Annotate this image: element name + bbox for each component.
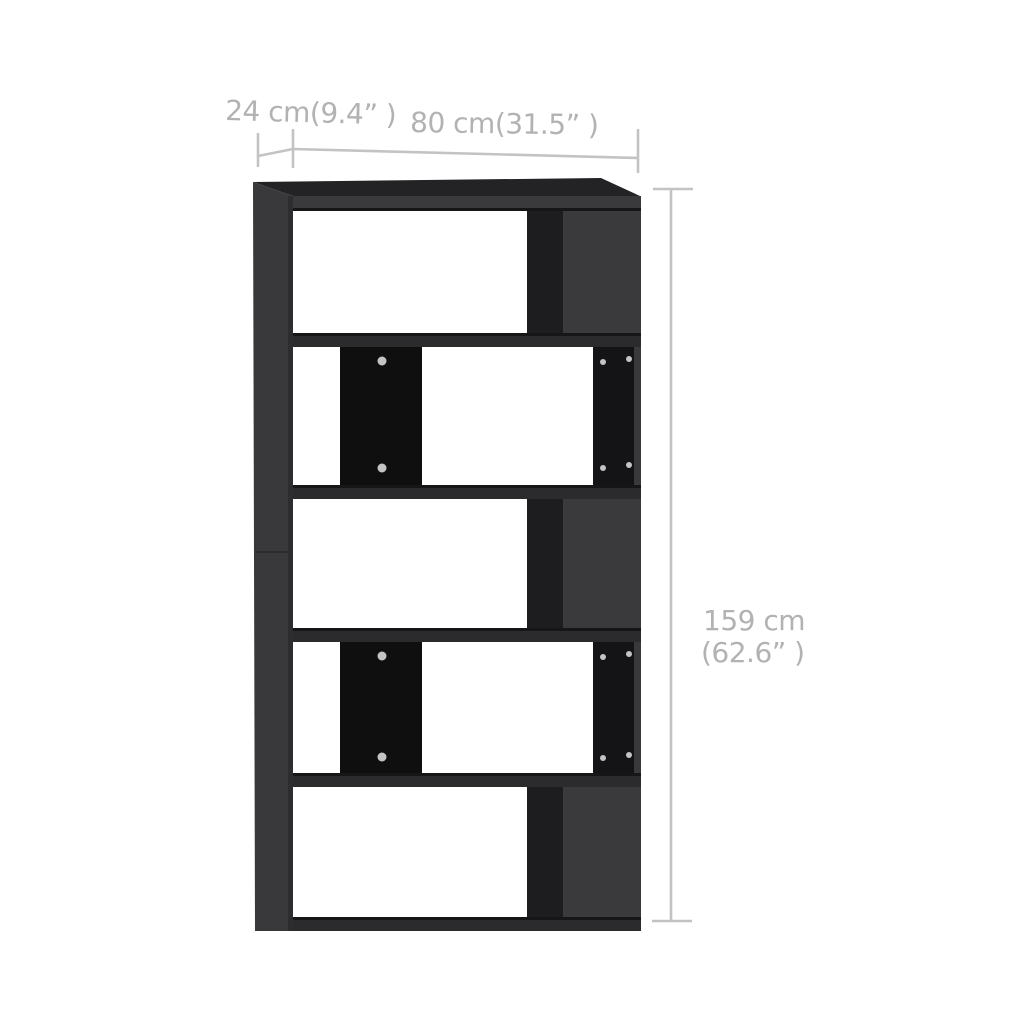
screw-dot: [626, 752, 632, 758]
left-panel-seam: [255, 551, 293, 553]
shelf-band-1: [293, 333, 641, 347]
block-front: [563, 211, 641, 333]
top-panel: [293, 196, 641, 211]
bottom-panel-face: [293, 920, 641, 931]
shelf-face: [293, 336, 641, 347]
shelf-top-edge: [293, 485, 641, 488]
block-front: [563, 787, 641, 917]
width-dimension-label: 80 cm(31.5” ): [410, 106, 599, 142]
depth-dimension-label: 24 cm(9.4” ): [225, 94, 397, 131]
left-side-panel: [253, 182, 293, 931]
shelf-face: [293, 776, 641, 787]
screw-dot: [626, 651, 632, 657]
dimension-diagram-canvas: 24 cm(9.4” ) 80 cm(31.5” ) 159 cm (62.6”…: [0, 0, 1024, 1024]
screw-dot: [378, 753, 387, 762]
dimensions: 24 cm(9.4” ) 80 cm(31.5” ) 159 cm (62.6”…: [225, 94, 805, 921]
block-inner-side: [527, 211, 563, 333]
block-row5: [527, 787, 641, 917]
screw-dot: [378, 652, 387, 661]
top-surface: [253, 178, 640, 196]
block-inner-side: [527, 499, 563, 628]
right-panel-edge: [634, 347, 641, 485]
right-panel-edge: [634, 642, 641, 773]
screw-dot: [600, 359, 606, 365]
screw-dot: [626, 356, 632, 362]
shelf-band-4: [293, 773, 641, 787]
bottom-panel-top-edge: [293, 917, 641, 920]
product-image-page: 24 cm(9.4” ) 80 cm(31.5” ) 159 cm (62.6”…: [0, 0, 1024, 1024]
depth-measure-line: [258, 149, 293, 156]
screw-dot: [378, 464, 387, 473]
screw-dot: [600, 465, 606, 471]
height-dimension-label-cm: 159 cm: [703, 604, 805, 637]
shelf-face: [293, 631, 641, 642]
screw-dot: [600, 755, 606, 761]
height-dimension-label-in: (62.6” ): [701, 636, 805, 669]
depth-dimension: 24 cm(9.4” ): [225, 94, 397, 168]
bookcase: [253, 178, 641, 931]
right-panel-row4: [593, 642, 641, 773]
screw-dot: [626, 462, 632, 468]
left-panel-front-edge: [288, 196, 293, 931]
shelf-top-edge: [293, 773, 641, 776]
block-inner-side: [527, 787, 563, 917]
block-row1: [527, 211, 641, 333]
width-measure-line: [293, 149, 638, 158]
divider-row2: [340, 347, 422, 485]
shelf-face: [293, 488, 641, 499]
shelf-top-edge: [293, 628, 641, 631]
screw-dot: [600, 654, 606, 660]
block-front: [563, 499, 641, 628]
block-row3: [527, 499, 641, 628]
divider-row4: [340, 642, 422, 773]
right-panel-row2: [593, 347, 641, 485]
shelf-top-edge: [293, 333, 641, 336]
shelf-band-3: [293, 628, 641, 642]
screw-dot: [378, 357, 387, 366]
shelf-band-2: [293, 485, 641, 499]
height-dimension: 159 cm (62.6” ): [652, 189, 805, 921]
top-panel-bottom-edge: [293, 208, 641, 211]
bottom-panel: [293, 917, 641, 931]
